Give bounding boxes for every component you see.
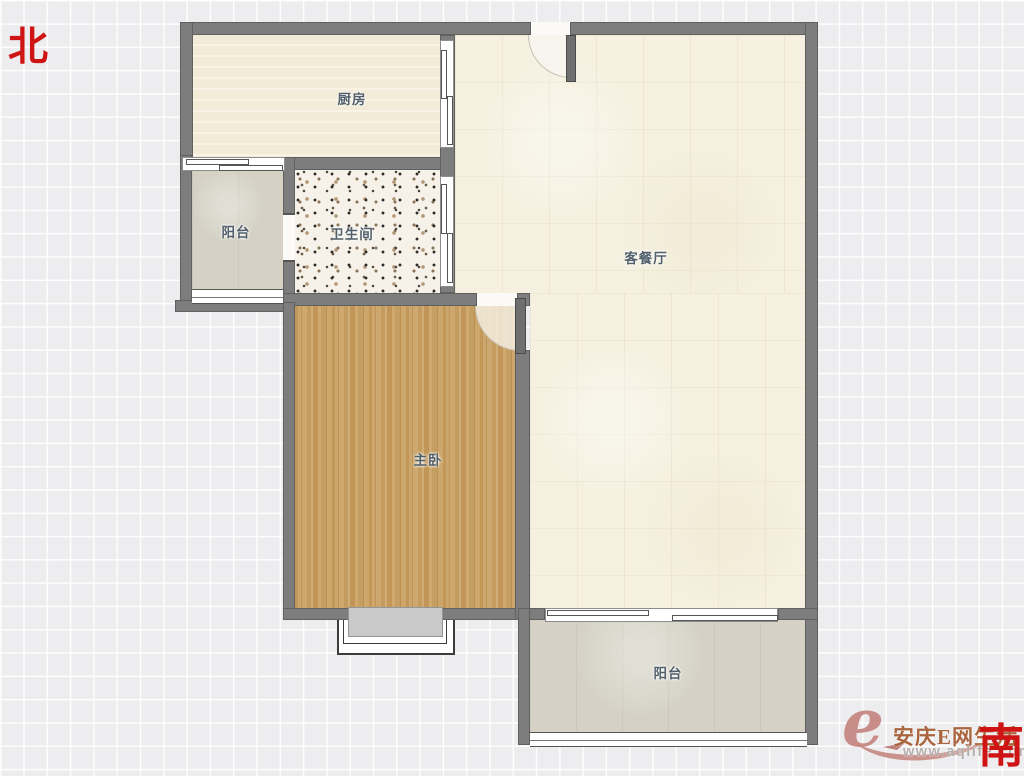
- window-mullion: [530, 740, 807, 741]
- floor-plan: 厨房 阳台 卫生间 客餐厅 主卧 阳台: [0, 0, 1024, 768]
- north-balcony-window: [192, 289, 283, 304]
- compass-south-label: 南: [978, 710, 1024, 776]
- south-balcony-window: [530, 732, 807, 747]
- wall-living-bottom-right: [778, 608, 818, 620]
- kitchen-balcony-sliding-door-panel: [219, 165, 283, 171]
- living-balcony-sliding-door-panel: [547, 610, 649, 616]
- wall-south-balcony-left: [518, 608, 530, 745]
- wall-north-balcony-left: [180, 155, 192, 312]
- wall-kitchen-left: [180, 22, 193, 168]
- room-master-bedroom-floor: [295, 306, 515, 608]
- window-mullion: [192, 297, 283, 298]
- page-background: { "compass": { "north_label": "北", "sout…: [0, 0, 1024, 768]
- wall-top-right: [570, 22, 818, 35]
- room-bathroom-label: 卫生间: [330, 223, 374, 243]
- entrance-door-leaf: [566, 35, 576, 82]
- wall-top-left: [180, 22, 531, 35]
- bedroom-door-opening: [477, 293, 517, 306]
- room-kitchen-label: 厨房: [338, 88, 367, 108]
- room-south-balcony-label: 阳台: [654, 662, 683, 682]
- kitchen-sliding-door-panel: [441, 50, 447, 99]
- living-balcony-sliding-door-panel: [672, 615, 778, 621]
- room-master-bedroom-label: 主卧: [414, 449, 443, 469]
- room-living-dining-floor: [530, 293, 805, 608]
- wall-bedroom-top-left: [283, 293, 477, 306]
- room-living-dining-label: 客餐厅: [624, 247, 668, 267]
- wall-bedroom-right: [515, 350, 530, 620]
- balcony-bathroom-door-opening: [283, 213, 295, 262]
- bedroom-door-leaf: [515, 298, 526, 354]
- compass-north-label: 北: [8, 14, 48, 72]
- entrance-door-opening: [531, 22, 570, 35]
- bathroom-sliding-door-panel: [441, 184, 447, 234]
- wall-right: [805, 22, 818, 745]
- room-north-balcony-label: 阳台: [222, 221, 251, 241]
- wall-bedroom-left: [283, 302, 295, 620]
- kitchen-sliding-door-panel: [447, 96, 453, 145]
- bathroom-sliding-door-panel: [447, 233, 453, 283]
- bay-window-sill: [348, 607, 443, 637]
- wall-kitchen-bottom: [285, 157, 455, 170]
- room-kitchen-floor: [193, 35, 440, 158]
